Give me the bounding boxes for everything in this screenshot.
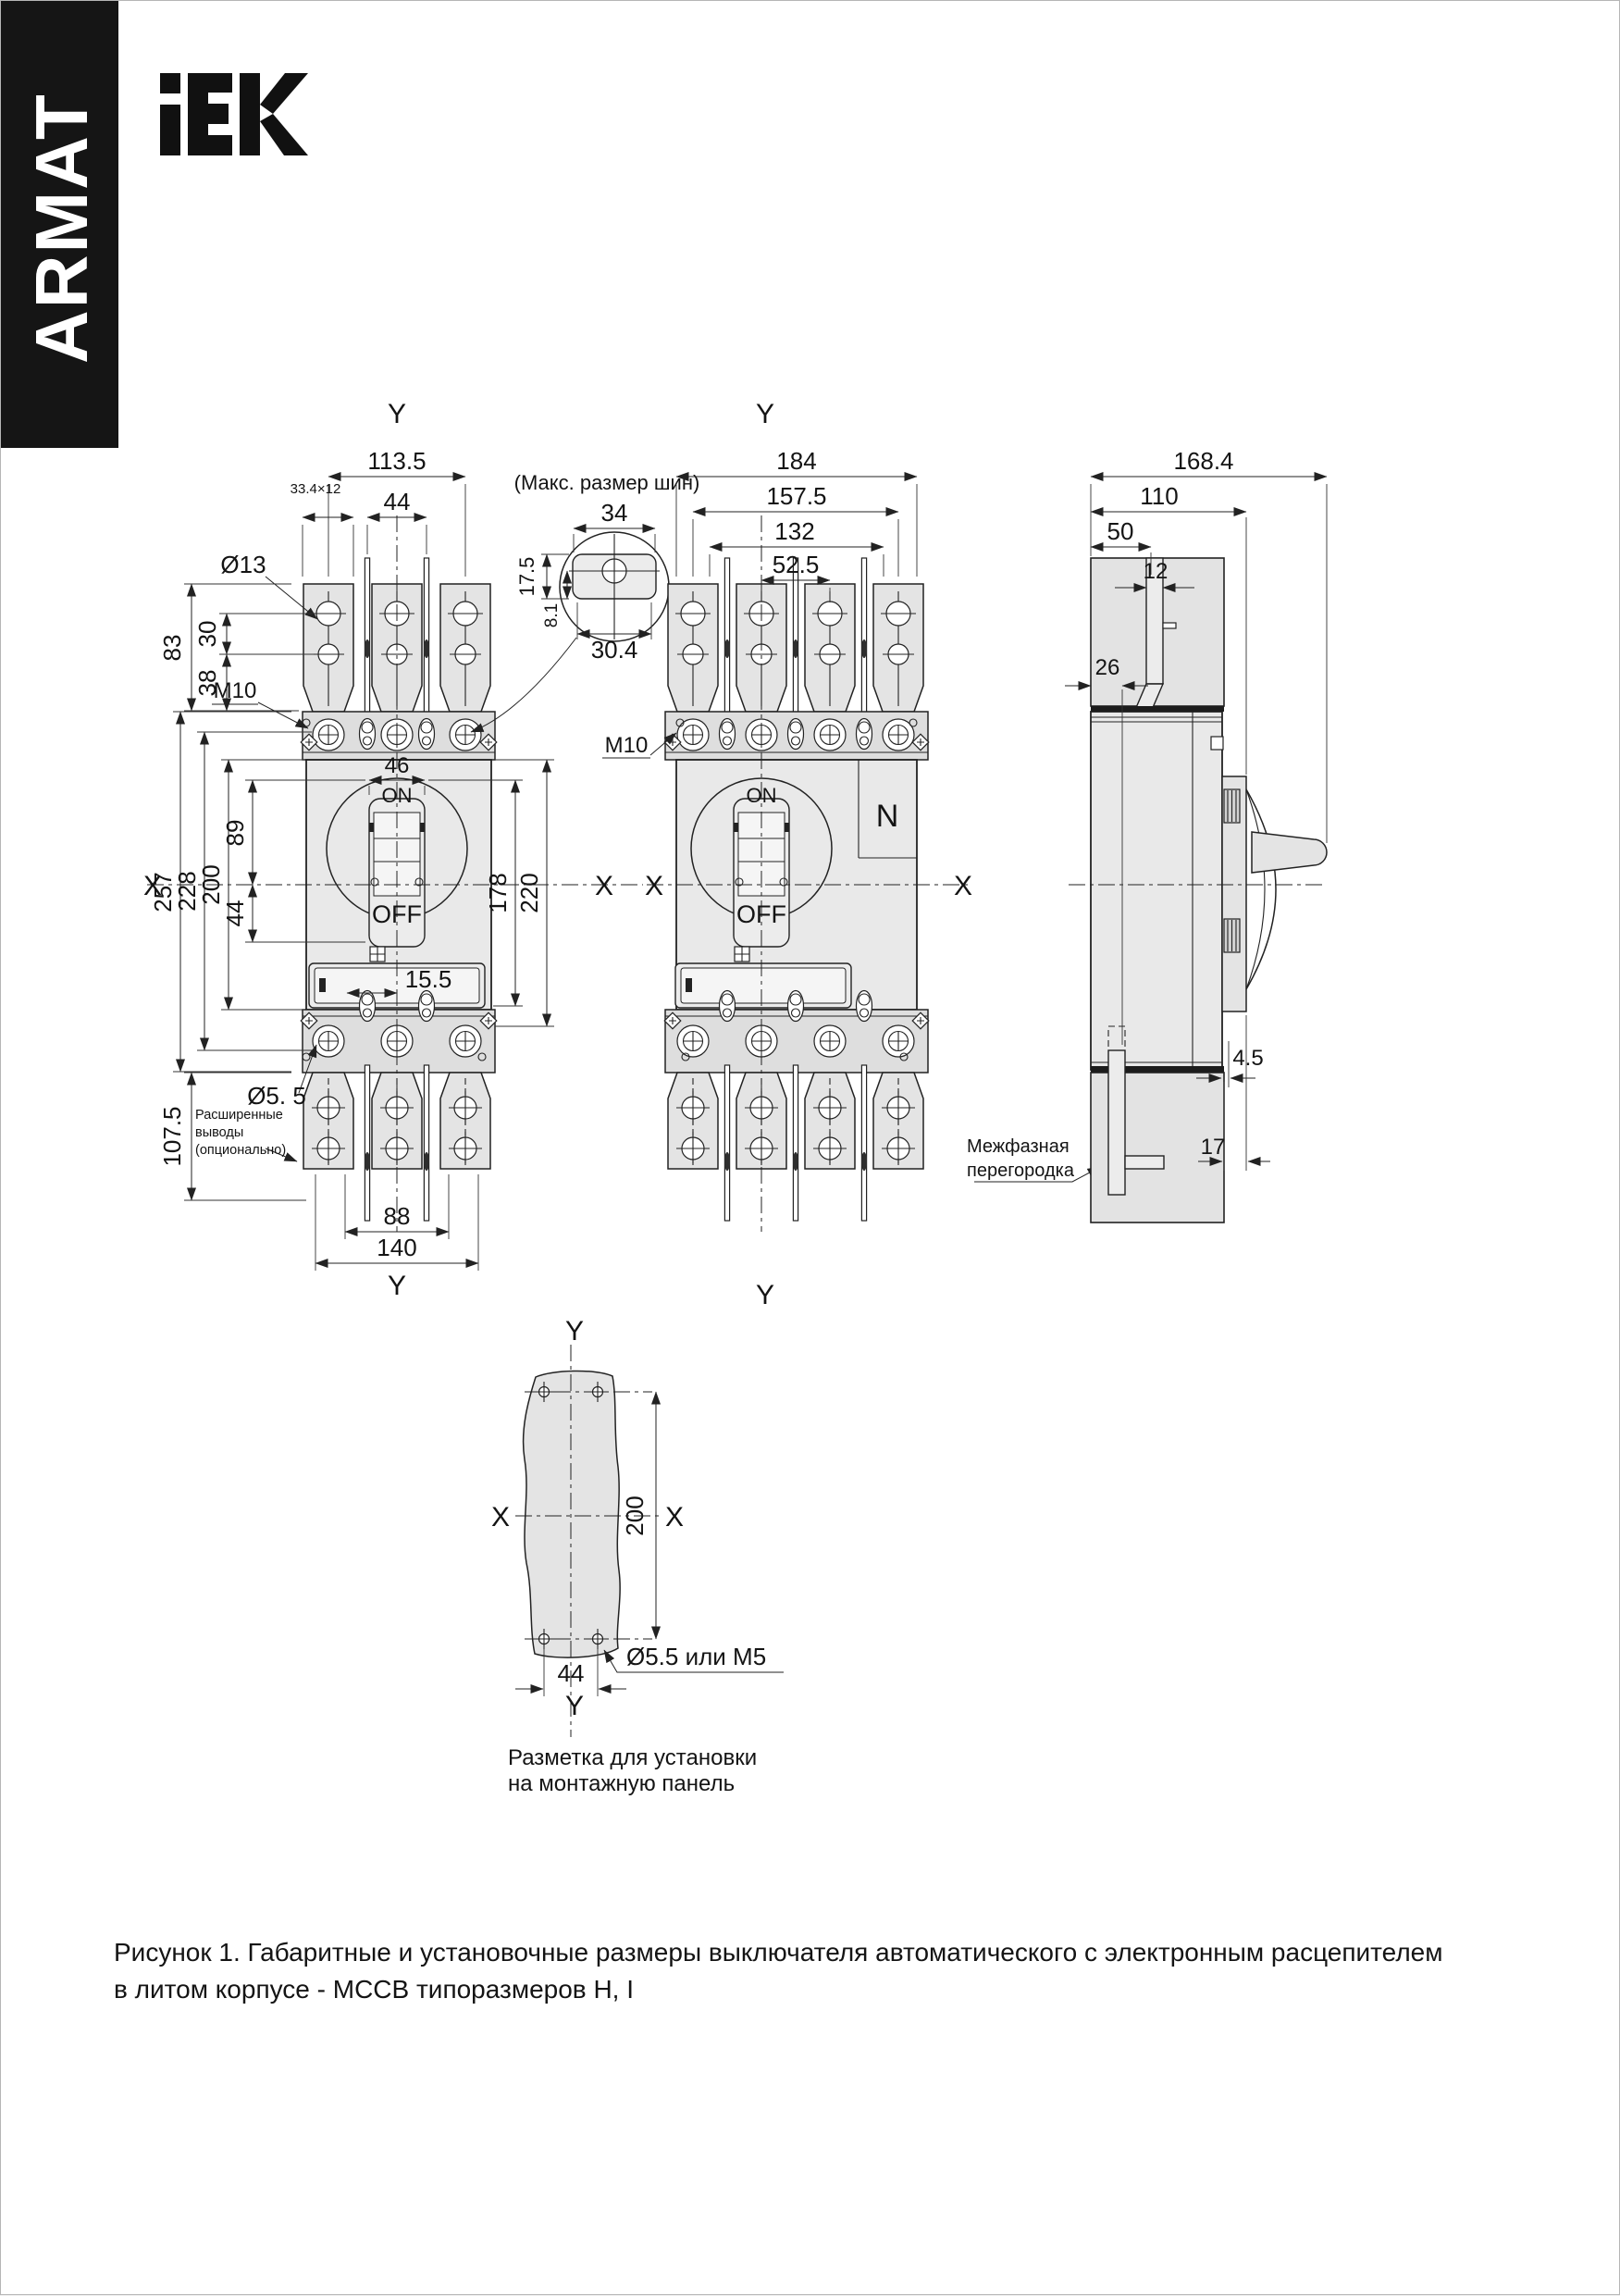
dim-label: 12 — [1144, 559, 1169, 584]
axis-label: Y — [388, 399, 406, 429]
axis-label: X — [954, 871, 972, 901]
axis-label: Y — [388, 1271, 406, 1301]
dim-label: 178 — [484, 873, 512, 912]
technical-drawing: ARMAT — [1, 1, 1620, 2296]
label-window-4p — [675, 963, 851, 1008]
iek-logo-k-lower-arm — [260, 114, 308, 155]
iek-logo-e — [188, 73, 232, 155]
dim-label: 15.5 — [405, 965, 452, 993]
front-view-4p-structure — [647, 515, 971, 1232]
dim-label: 17.5 — [515, 557, 538, 597]
dim-label: 184 — [776, 447, 816, 475]
panel-caption-line1: Разметка для установки — [508, 1745, 757, 1770]
side-barrier-bottom — [1108, 1050, 1125, 1195]
axis-label: Y — [565, 1316, 584, 1347]
dim-label: 30 — [193, 621, 221, 648]
axis-label: Y — [756, 1280, 774, 1310]
dim-label: 33.4×12 — [291, 481, 341, 497]
dim-label: 157.5 — [766, 482, 826, 510]
panel-plate — [524, 1371, 621, 1657]
busbar-detail: (Макс. размер шин) 34 17.5 8.1 30.4 — [471, 471, 699, 732]
dim-label: 44 — [384, 488, 411, 515]
handle-off-label: OFF — [736, 900, 786, 928]
armat-logo: ARMAT — [20, 93, 103, 364]
note-line: выводы — [195, 1125, 243, 1140]
caption-line2: в литом корпусе - MCCB типоразмеров H, I — [114, 1975, 634, 2004]
dim-label: Ø5. 5 — [247, 1082, 306, 1110]
note-line: (опционально) — [195, 1143, 286, 1158]
dim-label: 200 — [197, 864, 225, 904]
dim-label: 52.5 — [773, 551, 820, 578]
handle-on-label: ON — [747, 784, 777, 807]
dim-label: M10 — [214, 678, 257, 703]
axis-label: X — [143, 871, 162, 901]
dim-label: 132 — [774, 517, 814, 545]
dim-label: 44 — [221, 900, 249, 927]
dim-label: 113.5 — [367, 447, 426, 475]
iek-logo-i-dot — [160, 73, 180, 93]
dim-label: 26 — [1095, 655, 1120, 680]
axis-label: X — [665, 1502, 684, 1533]
partition-label-line2: перегородка — [967, 1160, 1075, 1181]
dim-label: 220 — [515, 873, 543, 912]
dim-label: 83 — [158, 635, 186, 662]
axis-label: X — [491, 1502, 510, 1533]
partition-label-line1: Межфазная — [967, 1136, 1070, 1157]
iek-logo — [160, 73, 308, 155]
iek-logo-k-upper-arm — [260, 73, 308, 114]
axis-label: X — [645, 871, 663, 901]
front-view-3p: Y 113.5 44 33.4×12 Ø13 83 30 38 M10 257 … — [143, 399, 643, 1301]
axis-label: Y — [756, 399, 774, 429]
dim-label: 168.4 — [1173, 447, 1233, 475]
dim-label: 110 — [1140, 482, 1178, 510]
side-body — [1091, 712, 1222, 1070]
dim-label: 4.5 — [1232, 1046, 1263, 1071]
mounting-panel-view: Y X X 200 Ø5.5 или M5 44 Y Разметка для … — [491, 1316, 784, 1796]
axis-label: X — [595, 871, 613, 901]
note-line: Расширенные — [195, 1108, 283, 1123]
axis-label: Y — [565, 1691, 584, 1721]
caption-line1: Рисунок 1. Габаритные и установочные раз… — [114, 1938, 1442, 1967]
dim-label: 30.4 — [591, 636, 638, 664]
hole-note: Ø5.5 или M5 — [626, 1643, 766, 1670]
drawing-page: ARMAT — [0, 0, 1620, 2295]
iek-logo-k-stem — [240, 73, 260, 155]
dim-label: 88 — [384, 1202, 411, 1230]
panel-caption-line2: на монтажную панель — [508, 1771, 735, 1796]
dim-label: 140 — [377, 1234, 416, 1261]
front-view-4p: Y 184 157.5 132 52.5 M10 N ON OFF X X Ме… — [602, 399, 1100, 1310]
dim-label: 34 — [601, 499, 628, 527]
side-bulge-inner — [1246, 789, 1265, 989]
iek-logo-i-stem — [160, 105, 180, 155]
dim-label: Ø13 — [220, 551, 266, 578]
dim-label: 200 — [621, 1496, 649, 1535]
handle-on-label: ON — [382, 784, 413, 807]
dim-label: 8.1 — [542, 603, 562, 627]
armat-banner: ARMAT — [1, 1, 118, 448]
dim-label: M10 — [605, 733, 649, 758]
dim-label: 89 — [221, 820, 249, 847]
detail-title: (Макс. размер шин) — [514, 471, 700, 494]
handle-off-label: OFF — [372, 900, 422, 928]
dim-label: 46 — [385, 753, 410, 778]
neutral-pole-label: N — [876, 799, 899, 834]
dim-label: 107.5 — [158, 1106, 186, 1166]
side-view: 168.4 110 50 12 26 4.5 17 — [1065, 447, 1327, 1222]
side-handle-lever — [1252, 832, 1327, 873]
side-bulge-outer — [1246, 789, 1276, 989]
figure-caption: Рисунок 1. Габаритные и установочные раз… — [114, 1938, 1442, 2004]
dim-label: 44 — [558, 1659, 585, 1687]
dim-label: 17 — [1201, 1135, 1226, 1160]
dim-label: 50 — [1107, 517, 1134, 545]
